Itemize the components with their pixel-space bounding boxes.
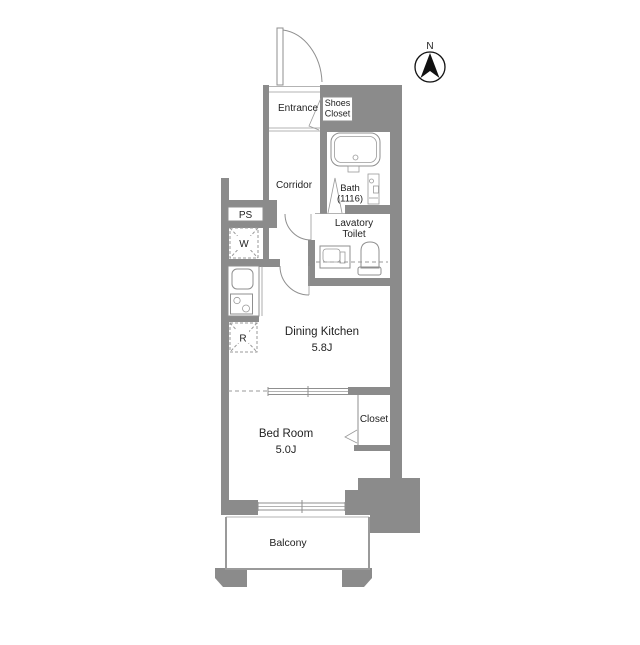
sliding-partition: [228, 386, 348, 397]
bedroom-area: 5.0J: [276, 444, 297, 456]
refrigerator-label: R: [239, 334, 246, 345]
lavatory-label-1: Lavatory: [335, 218, 373, 229]
compass: N: [415, 41, 445, 82]
balcony-window: [258, 500, 345, 513]
entrance-door-arc: [283, 30, 322, 82]
floor-plan-page: N Entrance Shoes Closet Corridor Bath (1…: [0, 0, 640, 640]
balcony-corner-block: [215, 568, 247, 587]
bath-label-1: Bath: [340, 183, 360, 194]
shoes-closet-label-1: Shoes: [325, 98, 351, 108]
closet-door-indicator: [345, 430, 357, 443]
north-label: N: [426, 41, 433, 52]
balcony-area: [215, 517, 372, 587]
balcony-corner-block: [342, 568, 372, 587]
kitchen-counter: [228, 266, 259, 316]
lavatory-label-2: Toilet: [342, 229, 366, 240]
dining-kitchen-area: 5.8J: [312, 342, 333, 354]
shoes-closet-label-2: Closet: [325, 109, 351, 119]
closet-label: Closet: [360, 414, 389, 425]
dk-door: [280, 266, 309, 295]
dining-kitchen-label: Dining Kitchen: [285, 326, 359, 338]
balcony-label: Balcony: [269, 537, 307, 549]
closet-area: [345, 395, 358, 445]
lavatory-door-arc: [285, 214, 311, 240]
washer-label: W: [239, 239, 249, 250]
dk-door-arc: [280, 266, 309, 295]
kitchen-area: [228, 266, 262, 316]
bath-label-2: (1116): [337, 194, 363, 205]
corridor-label: Corridor: [276, 180, 313, 191]
ps-label: PS: [239, 210, 253, 221]
entrance-door-leaf: [277, 28, 283, 85]
entrance-label: Entrance: [278, 103, 318, 114]
bedroom-label: Bed Room: [259, 428, 313, 440]
entrance-area: [269, 28, 322, 131]
floor-plan: N Entrance Shoes Closet Corridor Bath (1…: [0, 0, 640, 640]
